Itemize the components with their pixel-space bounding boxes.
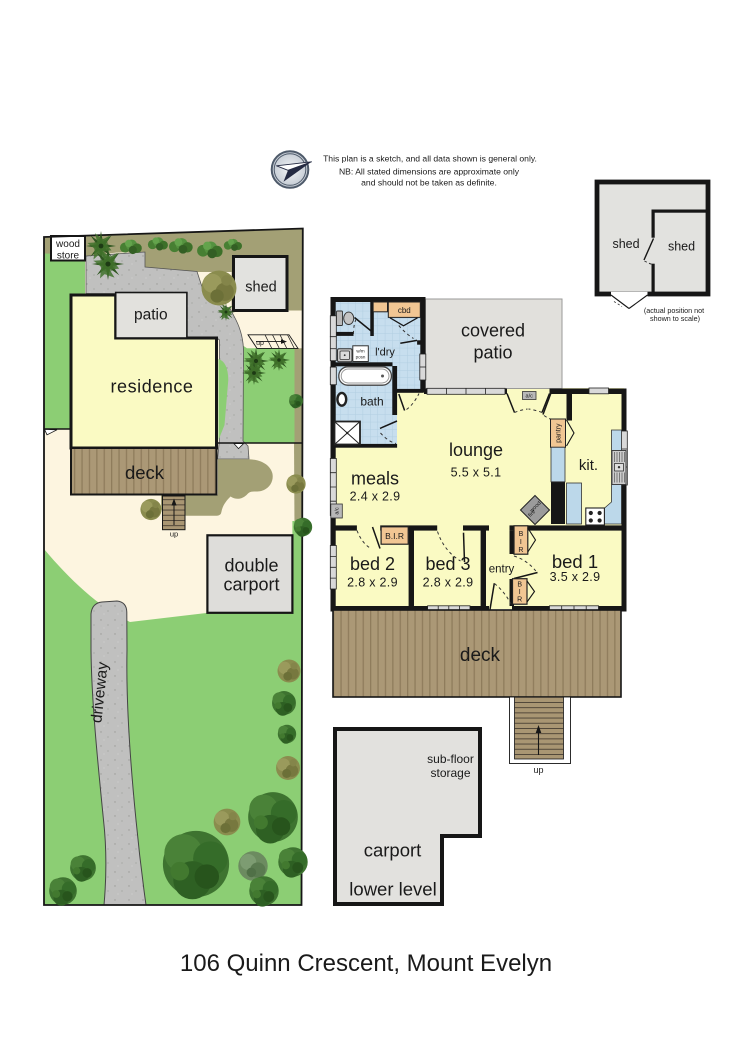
svg-text:shed: shed: [612, 237, 639, 251]
svg-text:sub-floor: sub-floor: [427, 752, 474, 766]
svg-text:R: R: [518, 547, 523, 554]
svg-text:2.8 x 2.9: 2.8 x 2.9: [423, 576, 474, 590]
svg-text:I: I: [520, 539, 522, 546]
svg-text:covered: covered: [461, 321, 525, 341]
svg-text:This plan is a sketch, and all: This plan is a sketch, and all data show…: [323, 154, 537, 164]
svg-text:entry: entry: [489, 564, 515, 576]
svg-text:residence: residence: [111, 377, 194, 397]
svg-text:R: R: [517, 597, 522, 604]
svg-text:shown to scale): shown to scale): [650, 314, 700, 323]
svg-text:bed 3: bed 3: [425, 554, 470, 574]
svg-text:3.5 x 2.9: 3.5 x 2.9: [550, 570, 601, 584]
svg-text:cbd: cbd: [398, 306, 411, 315]
svg-text:bath: bath: [360, 395, 383, 409]
svg-text:shed: shed: [668, 240, 695, 254]
svg-text:I: I: [519, 589, 521, 596]
svg-text:pantry: pantry: [556, 423, 563, 443]
svg-text:lower level: lower level: [349, 879, 436, 900]
svg-text:l'dry: l'dry: [375, 347, 395, 359]
svg-text:meals: meals: [351, 469, 399, 489]
svg-text:up: up: [256, 340, 264, 347]
svg-text:double: double: [224, 556, 278, 576]
svg-text:bed 1: bed 1: [552, 551, 598, 572]
svg-text:shed: shed: [245, 280, 276, 296]
svg-text:up: up: [533, 765, 543, 775]
svg-text:storage: storage: [430, 766, 470, 780]
svg-text:a/c: a/c: [335, 507, 341, 515]
svg-text:patio: patio: [134, 307, 168, 324]
svg-text:up: up: [170, 530, 178, 539]
svg-text:5.5 x 5.1: 5.5 x 5.1: [451, 466, 502, 480]
svg-text:NB: All stated dimensions are: NB: All stated dimensions are approximat…: [339, 167, 520, 177]
svg-text:B: B: [517, 582, 522, 589]
svg-text:and should not be taken as def: and should not be taken as definite.: [361, 178, 497, 188]
svg-text:patio: patio: [473, 343, 512, 363]
svg-text:a/c: a/c: [526, 394, 534, 400]
svg-text:w/m: w/m: [356, 349, 365, 354]
svg-text:carport: carport: [223, 575, 279, 595]
svg-text:posn: posn: [356, 355, 366, 360]
svg-text:106 Quinn Crescent, Mount Evel: 106 Quinn Crescent, Mount Evelyn: [180, 950, 552, 977]
svg-text:carport: carport: [364, 840, 422, 861]
svg-text:bed 2: bed 2: [350, 554, 395, 574]
svg-text:2.4 x 2.9: 2.4 x 2.9: [350, 490, 401, 504]
svg-text:2.8 x 2.9: 2.8 x 2.9: [347, 576, 398, 590]
svg-text:kit.: kit.: [579, 457, 598, 474]
svg-text:store: store: [57, 251, 80, 262]
svg-text:B.I.R: B.I.R: [385, 531, 404, 541]
svg-text:B: B: [519, 531, 524, 538]
svg-text:wood: wood: [55, 239, 80, 250]
svg-text:deck: deck: [460, 645, 501, 666]
svg-text:deck: deck: [125, 462, 165, 483]
svg-text:lounge: lounge: [449, 440, 503, 460]
